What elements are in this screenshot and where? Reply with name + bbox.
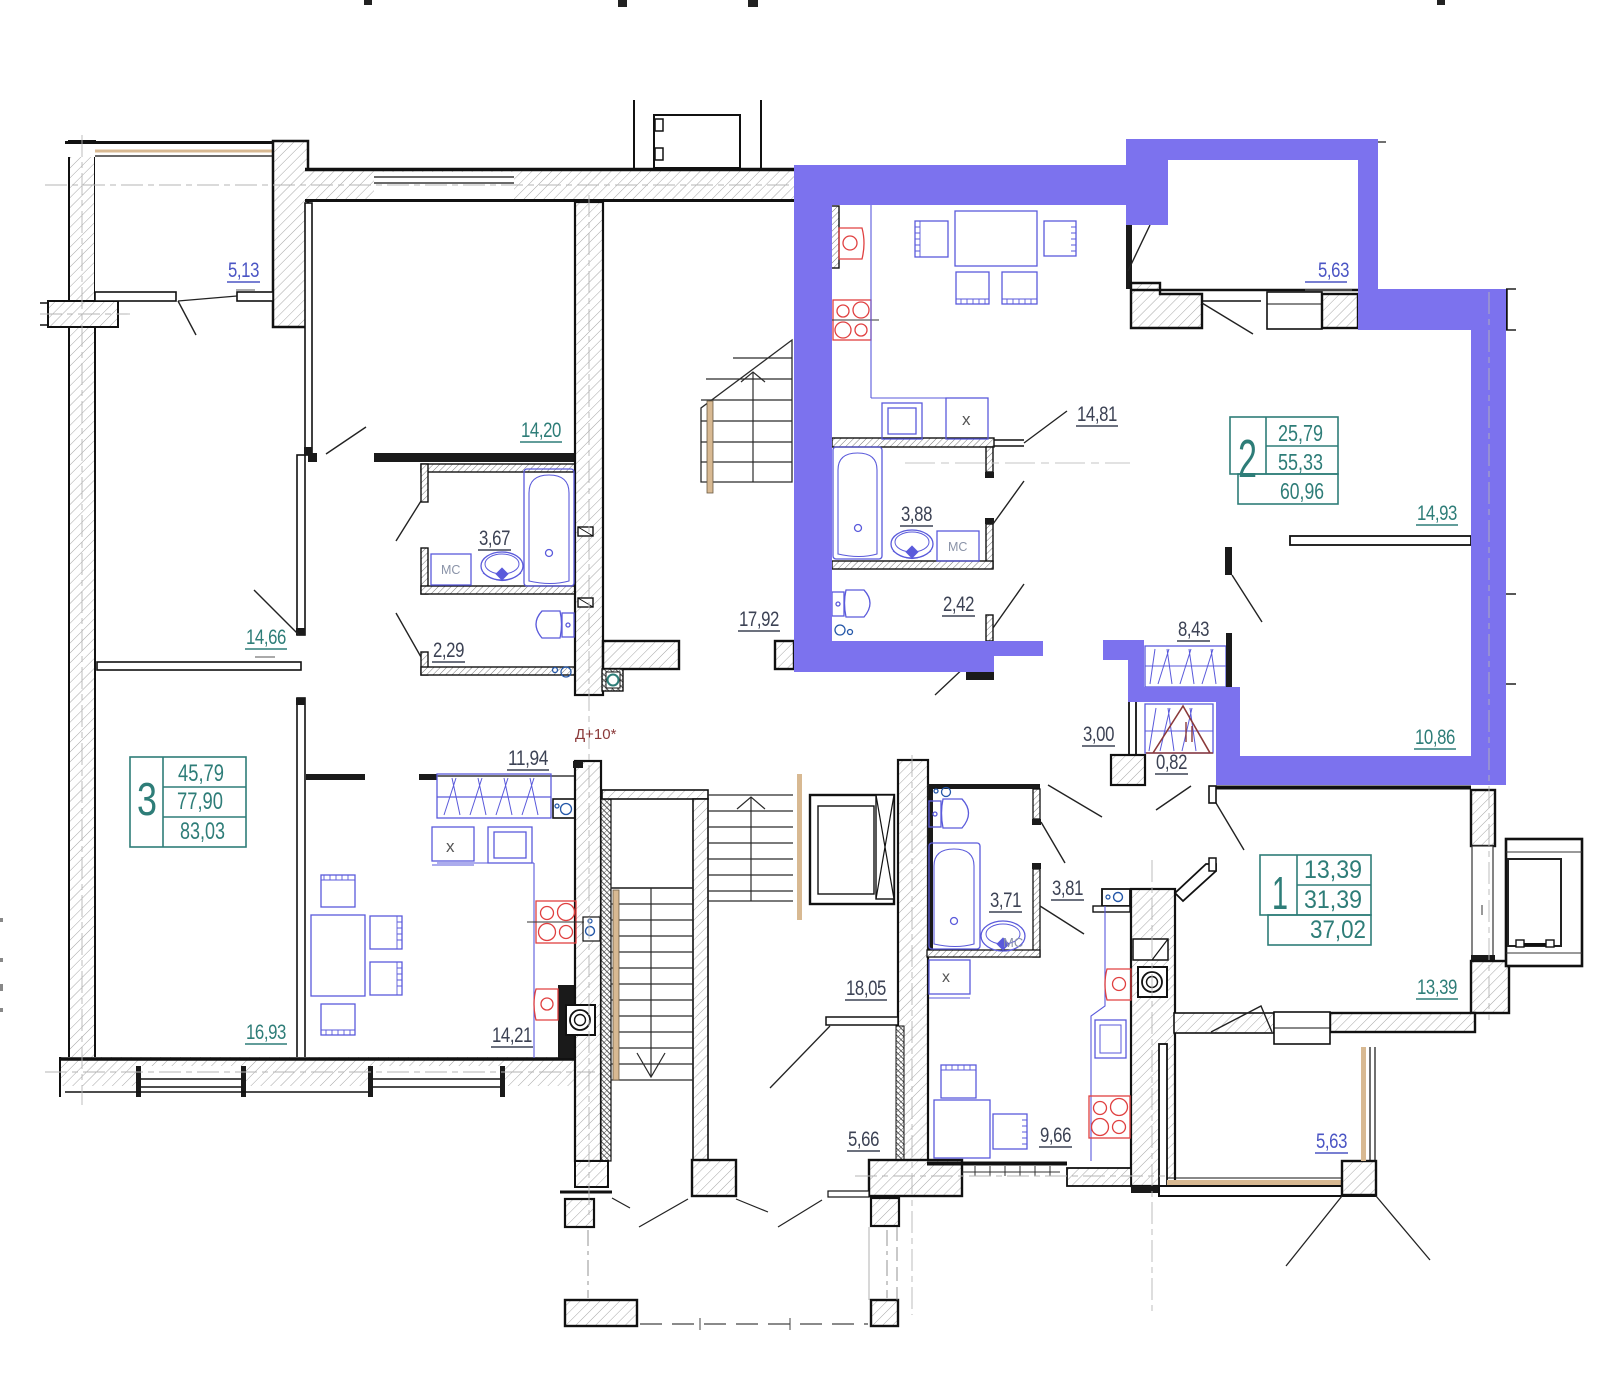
svg-text:x: x xyxy=(942,969,950,986)
svg-text:60,96: 60,96 xyxy=(1280,478,1324,504)
svg-text:11,94: 11,94 xyxy=(508,747,549,770)
svg-text:14,20: 14,20 xyxy=(521,419,561,442)
svg-text:45,79: 45,79 xyxy=(178,760,224,787)
svg-text:3: 3 xyxy=(137,773,157,825)
svg-text:5,63: 5,63 xyxy=(1318,259,1349,282)
svg-text:Д+10*: Д+10* xyxy=(575,726,617,743)
svg-text:5,63: 5,63 xyxy=(1316,1130,1347,1153)
svg-text:13,39: 13,39 xyxy=(1417,976,1457,999)
svg-text:14,93: 14,93 xyxy=(1417,502,1457,525)
svg-text:0,82: 0,82 xyxy=(1156,751,1187,774)
svg-text:MC: MC xyxy=(441,563,460,577)
svg-text:18,05: 18,05 xyxy=(846,977,886,1000)
svg-text:2,29: 2,29 xyxy=(433,639,464,662)
svg-text:37,02: 37,02 xyxy=(1310,916,1366,944)
svg-text:14,81: 14,81 xyxy=(1077,403,1117,426)
svg-text:2,42: 2,42 xyxy=(943,593,974,616)
svg-text:8,43: 8,43 xyxy=(1178,618,1209,641)
svg-text:14,21: 14,21 xyxy=(492,1024,532,1047)
svg-text:5,13: 5,13 xyxy=(228,259,259,282)
svg-text:31,39: 31,39 xyxy=(1304,886,1362,914)
svg-text:3,71: 3,71 xyxy=(990,889,1021,912)
svg-text:MC: MC xyxy=(1003,935,1023,950)
svg-text:3,88: 3,88 xyxy=(901,503,932,526)
svg-text:77,90: 77,90 xyxy=(177,788,223,815)
svg-text:3,81: 3,81 xyxy=(1052,877,1083,900)
svg-text:MC: MC xyxy=(948,540,967,554)
svg-text:x: x xyxy=(962,410,971,429)
svg-text:10,86: 10,86 xyxy=(1415,726,1455,749)
svg-text:1: 1 xyxy=(1272,867,1288,919)
svg-text:9,66: 9,66 xyxy=(1040,1124,1071,1147)
svg-text:2: 2 xyxy=(1238,429,1257,489)
svg-text:3,00: 3,00 xyxy=(1083,723,1114,746)
svg-text:83,03: 83,03 xyxy=(180,818,225,845)
svg-text:55,33: 55,33 xyxy=(1278,449,1323,475)
svg-text:x: x xyxy=(446,837,455,856)
svg-text:16,93: 16,93 xyxy=(246,1021,286,1044)
svg-text:14,66: 14,66 xyxy=(246,626,286,649)
svg-text:25,79: 25,79 xyxy=(1278,420,1323,446)
svg-text:5,66: 5,66 xyxy=(848,1128,879,1151)
svg-text:17,92: 17,92 xyxy=(739,608,779,631)
svg-text:13,39: 13,39 xyxy=(1304,856,1362,884)
svg-text:3,67: 3,67 xyxy=(479,527,510,550)
